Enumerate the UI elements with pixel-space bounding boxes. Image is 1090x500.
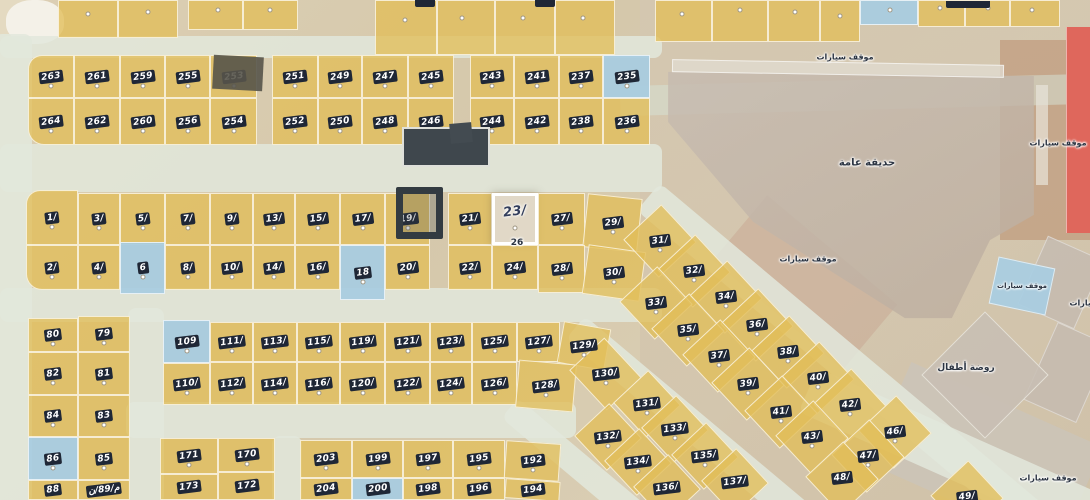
plot-centroid-dot: [184, 391, 189, 396]
plot-centroid-dot: [268, 8, 273, 13]
plot-label: 264: [39, 114, 64, 129]
plot-centroid-dot: [102, 465, 107, 470]
plot-centroid-dot: [102, 341, 107, 346]
plot-centroid-dot: [187, 463, 192, 468]
plot-centroid-dot: [624, 83, 629, 88]
plot-label: 14/: [263, 260, 285, 275]
plot-centroid-dot: [724, 304, 729, 309]
plot-label-cut: [535, 0, 555, 7]
plot[interactable]: [820, 0, 860, 42]
plot-label: 88: [44, 483, 62, 497]
plot-label: 250: [328, 114, 353, 129]
plot-centroid-dot: [490, 83, 495, 88]
plot-centroid-dot: [816, 385, 821, 390]
plot-centroid-dot: [460, 16, 465, 21]
plot[interactable]: [118, 0, 178, 38]
plot-label: 22/: [459, 260, 481, 275]
plot-centroid-dot: [185, 83, 190, 88]
plot-label: 259: [130, 69, 155, 84]
plot-label: 238: [569, 114, 594, 129]
plot-centroid-dot: [229, 390, 234, 395]
plot-centroid-dot: [1030, 8, 1035, 13]
plot-centroid-dot: [703, 463, 708, 468]
plot-centroid-dot: [49, 128, 54, 133]
plot-centroid-dot: [513, 226, 518, 231]
plot-label: 10/: [220, 260, 242, 275]
plot-label: 255: [175, 69, 200, 84]
plot-centroid-dot: [838, 14, 843, 19]
plot[interactable]: [768, 0, 820, 42]
plot-label: 49/: [956, 490, 978, 500]
plot-centroid-dot: [102, 423, 107, 428]
plot-centroid-dot: [86, 12, 91, 17]
plot-centroid-dot: [779, 419, 784, 424]
plot-centroid-dot: [405, 390, 410, 395]
plot-centroid-dot: [273, 349, 278, 354]
plot-centroid-dot: [140, 83, 145, 88]
label-parking-bottom-right: موقف سيارات: [1019, 474, 1076, 483]
plot[interactable]: [375, 0, 437, 55]
plot-label: 263: [39, 69, 64, 84]
plot-centroid-dot: [612, 280, 617, 285]
plot-label: 260: [130, 114, 155, 129]
plot-centroid-dot: [893, 439, 898, 444]
plot[interactable]: [1010, 0, 1060, 27]
plot-centroid-dot: [216, 8, 221, 13]
plot-centroid-dot: [231, 128, 236, 133]
plot-centroid-dot: [229, 274, 234, 279]
label-parking-mid: موقف سيارات: [779, 255, 836, 264]
plot-label: 7/: [180, 212, 196, 226]
plot[interactable]: [655, 0, 712, 42]
map: 2632612592552532512492472452432412372352…: [0, 0, 1090, 500]
plot-centroid-dot: [477, 466, 482, 471]
plot-centroid-dot: [97, 226, 102, 231]
plot-centroid-dot: [360, 279, 365, 284]
plot-centroid-dot: [51, 342, 56, 347]
plot-centroid-dot: [338, 128, 343, 133]
plot-centroid-dot: [273, 390, 278, 395]
plot-centroid-dot: [717, 363, 722, 368]
plot-label: 82: [44, 366, 62, 380]
plot-centroid-dot: [534, 83, 539, 88]
plot-centroid-dot: [102, 380, 107, 385]
plot-centroid-dot: [360, 349, 365, 354]
plot-label: 262: [85, 114, 110, 129]
plot-centroid-dot: [536, 349, 541, 354]
plot-centroid-dot: [581, 16, 586, 21]
plot-centroid-dot: [544, 393, 549, 398]
plot-centroid-dot: [50, 274, 55, 279]
plot-centroid-dot: [146, 10, 151, 15]
plot-centroid-dot: [579, 128, 584, 133]
plot-label: 109: [174, 334, 199, 349]
plot-centroid-dot: [559, 226, 564, 231]
plot-label: 235: [614, 69, 639, 84]
plot-centroid-dot: [888, 8, 893, 13]
plot-centroid-dot: [654, 310, 659, 315]
plot-label-cut: [415, 0, 435, 7]
plot-label: 243: [480, 69, 505, 84]
building: [212, 55, 264, 92]
plot-centroid-dot: [405, 349, 410, 354]
plot-centroid-dot: [429, 83, 434, 88]
plot-centroid-dot: [140, 226, 145, 231]
plot-centroid-dot: [449, 349, 454, 354]
label-parking-right-strip: موقف سيارات: [1029, 139, 1086, 148]
plot-centroid-dot: [360, 226, 365, 231]
plot-centroid-dot: [272, 226, 277, 231]
plot-centroid-dot: [229, 349, 234, 354]
plot-centroid-dot: [272, 274, 277, 279]
plot-label: 5/: [135, 212, 151, 226]
plot-centroid-dot: [938, 6, 943, 11]
plot-label: 80: [44, 328, 62, 342]
plot-label: 15/: [306, 212, 328, 227]
plot-centroid-dot: [692, 278, 697, 283]
plot-centroid-dot: [645, 411, 650, 416]
plot-centroid-dot: [530, 468, 535, 473]
plot-centroid-dot: [95, 83, 100, 88]
plot-centroid-dot: [658, 248, 663, 253]
plot-centroid-dot: [673, 436, 678, 441]
plot-label: 249: [328, 69, 353, 84]
plot-centroid-dot: [468, 274, 473, 279]
plot-centroid-dot: [375, 466, 380, 471]
plot[interactable]: [58, 0, 118, 38]
plot-centroid-dot: [579, 83, 584, 88]
plot-label: 24/: [504, 260, 526, 275]
plot-label: 2/: [44, 261, 60, 275]
plot-centroid-dot: [383, 128, 388, 133]
plot-centroid-dot: [95, 128, 100, 133]
plot-centroid-dot: [534, 128, 539, 133]
plot-label: 248: [373, 114, 398, 129]
plot-centroid-dot: [468, 226, 473, 231]
plot-label: 245: [419, 69, 444, 84]
plot-centroid-dot: [793, 10, 798, 15]
plot-centroid-dot: [738, 8, 743, 13]
plot-centroid-dot: [521, 16, 526, 21]
plot-centroid-dot: [449, 390, 454, 395]
plot-label: 79: [95, 327, 113, 341]
plot-label: 236: [614, 114, 639, 129]
plot-label: 242: [524, 114, 549, 129]
plots-layer: 2632612592552532512492472452432412372352…: [0, 0, 1090, 500]
plot[interactable]: [188, 0, 243, 30]
plot-label: 27/: [550, 212, 572, 227]
plot-centroid-dot: [686, 337, 691, 342]
plot-centroid-dot: [490, 128, 495, 133]
plot-label: 23/: [500, 202, 530, 223]
plot-label-cut: [946, 1, 990, 8]
plot-centroid-dot: [746, 391, 751, 396]
plot-centroid-dot: [582, 353, 587, 358]
plot-label: 18: [353, 265, 371, 279]
plot-centroid-dot: [810, 444, 815, 449]
plot-centroid-dot: [184, 348, 189, 353]
plot-centroid-dot: [405, 274, 410, 279]
label-sub-26: 26: [511, 238, 524, 248]
label-parking-right-cut: موقف سيارات: [1069, 299, 1090, 308]
plot-label: 241: [524, 69, 549, 84]
plot[interactable]: [860, 0, 918, 25]
plot-centroid-dot: [606, 444, 611, 449]
plot-centroid-dot: [866, 463, 871, 468]
plot-centroid-dot: [315, 226, 320, 231]
plot-label: 4/: [91, 261, 107, 275]
plot-centroid-dot: [559, 276, 564, 281]
plot-centroid-dot: [229, 226, 234, 231]
plot[interactable]: [712, 0, 768, 42]
plot-label: 28/: [550, 262, 572, 277]
plot-label: 17/: [351, 212, 373, 227]
plot[interactable]: [495, 0, 555, 55]
plot-centroid-dot: [426, 466, 431, 471]
plot-centroid-dot: [244, 462, 249, 467]
plot-centroid-dot: [185, 274, 190, 279]
plot-label: 261: [85, 69, 110, 84]
plot-label: 9/: [224, 212, 240, 226]
plot-centroid-dot: [51, 465, 56, 470]
plot-label: 16/: [306, 260, 328, 275]
plot-centroid-dot: [610, 230, 615, 235]
plot-label: 237: [569, 69, 594, 84]
plot-centroid-dot: [316, 390, 321, 395]
plot-centroid-dot: [51, 380, 56, 385]
plot-centroid-dot: [680, 12, 685, 17]
plot-centroid-dot: [603, 381, 608, 386]
plot-centroid-dot: [293, 83, 298, 88]
plot-centroid-dot: [315, 274, 320, 279]
plot-label: 1/: [44, 211, 60, 225]
plot-centroid-dot: [185, 226, 190, 231]
plot-label: 247: [373, 69, 398, 84]
plot-centroid-dot: [97, 274, 102, 279]
plot-centroid-dot: [786, 359, 791, 364]
plot-centroid-dot: [624, 128, 629, 133]
plot[interactable]: [437, 0, 495, 55]
plot-centroid-dot: [360, 390, 365, 395]
plot-centroid-dot: [492, 349, 497, 354]
plot-centroid-dot: [636, 469, 641, 474]
plot-centroid-dot: [49, 83, 54, 88]
plot-centroid-dot: [140, 275, 145, 280]
label-kindergarten: روضة أطفال: [937, 363, 994, 373]
plot-label: 251: [283, 69, 308, 84]
building-frame: [396, 187, 443, 239]
plot-label: 20/: [396, 260, 418, 275]
label-parking-blue: موقف سيارات: [997, 282, 1047, 290]
plot-centroid-dot: [51, 423, 56, 428]
plot-label: 81: [95, 366, 113, 380]
plot[interactable]: [243, 0, 298, 30]
label-public-park: حديقة عامة: [839, 158, 895, 169]
plot-label: 84: [44, 409, 62, 423]
plot-centroid-dot: [185, 128, 190, 133]
label-parking-top: موقف سيارات: [816, 53, 873, 62]
plot-centroid-dot: [50, 224, 55, 229]
building: [402, 127, 490, 167]
plot-centroid-dot: [755, 332, 760, 337]
plot-centroid-dot: [293, 128, 298, 133]
plot-label: 8/: [180, 261, 196, 275]
plot-centroid-dot: [492, 390, 497, 395]
plot-centroid-dot: [338, 83, 343, 88]
plot-centroid-dot: [140, 128, 145, 133]
plot-label: 254: [221, 114, 246, 129]
plot-label: 29/: [601, 216, 623, 231]
plot-centroid-dot: [324, 466, 329, 471]
plot-centroid-dot: [848, 412, 853, 417]
plot-centroid-dot: [403, 18, 408, 23]
building: [449, 122, 473, 144]
plot-label: 3/: [91, 212, 107, 226]
plot-label: 252: [283, 114, 308, 129]
plot-label: 85: [95, 451, 113, 465]
plot-label: 86: [44, 451, 62, 465]
plot-centroid-dot: [383, 83, 388, 88]
plot-label: 6: [137, 261, 149, 274]
plot-centroid-dot: [513, 274, 518, 279]
plot-label: 83: [95, 409, 113, 423]
plot-centroid-dot: [316, 349, 321, 354]
plot[interactable]: [555, 0, 615, 55]
plot-label: 256: [175, 114, 200, 129]
